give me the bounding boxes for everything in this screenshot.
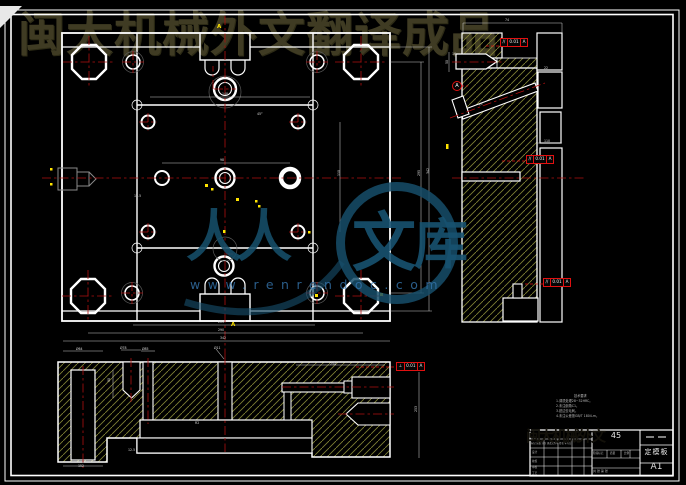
tolerance-frame-4: ⊥0.01A [396,362,425,371]
gdt-value: 0.01 [550,279,563,286]
sheet-count: 共 张 第 张 [593,469,608,473]
titleblock-row-audit: 审核 [532,465,537,469]
gdt-value: 0.01 [533,156,546,163]
part-name: 定模板 [640,447,673,457]
note-line: 4.未注公差按GB/T 1804-m。 [556,414,668,419]
gdt-symbol: ⊥ [397,363,404,370]
guide-hole-octagons [71,45,378,313]
titleblock-row-design: 设计 [532,450,537,454]
blind-hole [123,362,140,398]
datum-label-A: A [452,81,462,91]
center-bore-slot [462,172,520,181]
gdt-value: 0.01 [404,363,417,370]
watermark-blob: 闽大机械外文 [526,425,606,447]
section-mark-bottom: A [231,322,235,328]
bottom-section-view [58,362,390,462]
gdt-datum: A [520,39,527,46]
pedestal [503,298,538,321]
cad-drawing-sheet: 闽大机械外文翻译成品 [0,0,686,485]
technical-notes: 技术要求 1.调质处理28~32HRC。 2.未注倒角C1。 3.锐边去毛刺。 … [556,394,668,419]
side-pin-hidden [58,168,96,190]
gdt-value: 0.01 [507,39,520,46]
titleblock-row-process: 工艺 [532,471,537,475]
titleblock-row-check: 校核 [532,459,537,463]
sheet-size: A1 [640,462,673,472]
gdt-datum: A [546,156,553,163]
tolerance-frame-1: //0.01A [500,38,528,47]
gdt-datum: A [417,363,424,370]
tolerance-frame-2: //0.01A [526,155,554,164]
tolerance-frame-3: //0.01A [543,278,571,287]
cavity [140,420,312,438]
mass-label: 质量 [610,451,615,455]
screw-holes-outer [122,52,328,304]
section-mark-top: A [217,24,221,30]
gdt-datum: A [563,279,570,286]
stepped-hole-1 [352,377,390,398]
highlight-marks [50,144,449,297]
scale-label: 比例 [624,451,629,455]
center-holes [155,76,299,276]
stage-label: 阶段标记 [593,451,603,455]
